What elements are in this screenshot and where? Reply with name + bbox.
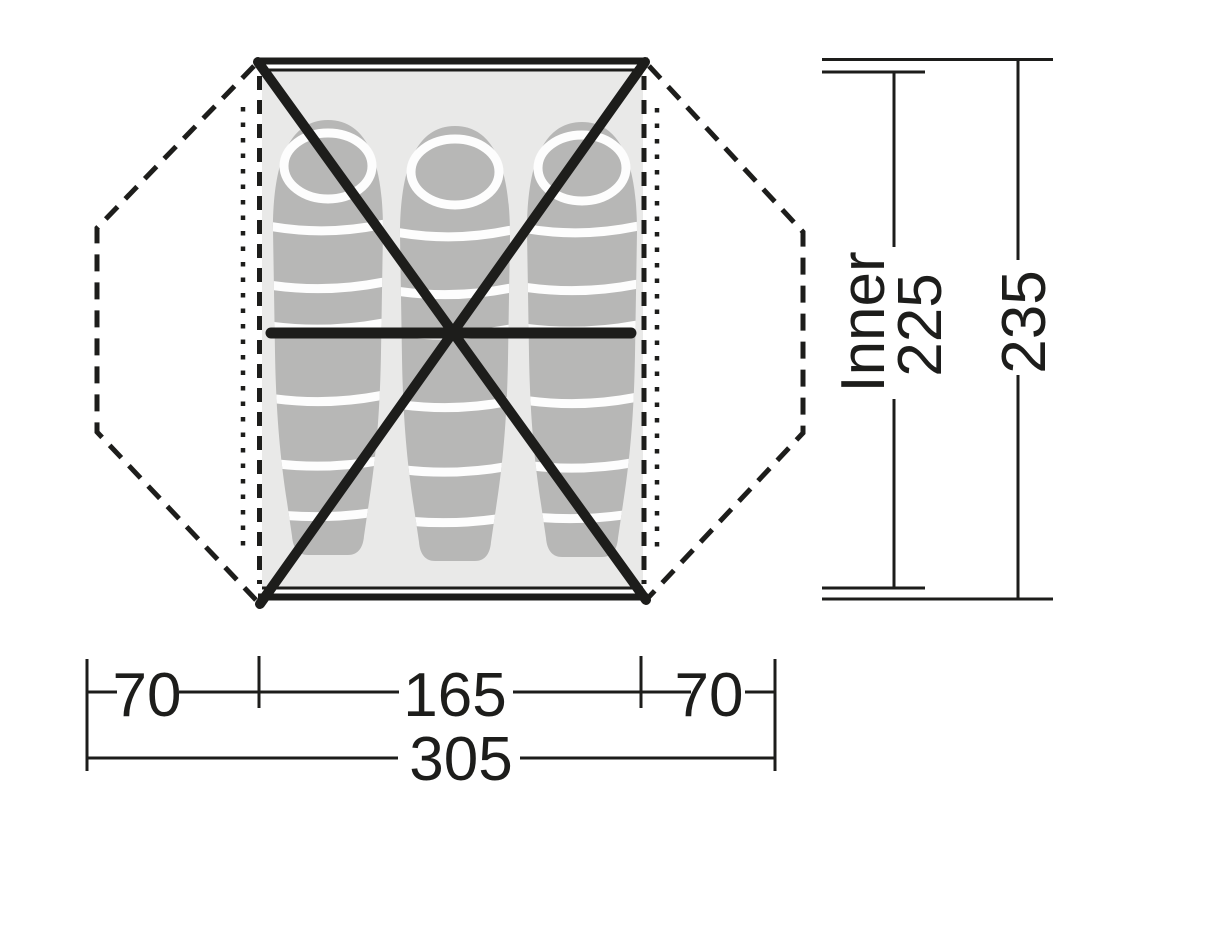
vestibule-outline-right [647,66,803,599]
total-width-value: 305 [409,725,512,794]
tent-dimensions-diagram: Inner 225 235 70 165 70 305 [0,0,1230,929]
left-vestibule-width-value: 70 [113,661,182,730]
total-length-value: 235 [990,270,1059,373]
diagram-canvas: Inner 225 235 70 165 70 305 [0,0,1230,929]
dimension-total-width: 305 [87,725,775,794]
right-vestibule-width-value: 70 [675,661,744,730]
vestibule-outline-left [97,66,256,600]
inner-length-value: 225 [886,273,955,376]
inner-width-value: 165 [403,661,506,730]
dimension-inner-length: Inner 225 [822,72,955,588]
